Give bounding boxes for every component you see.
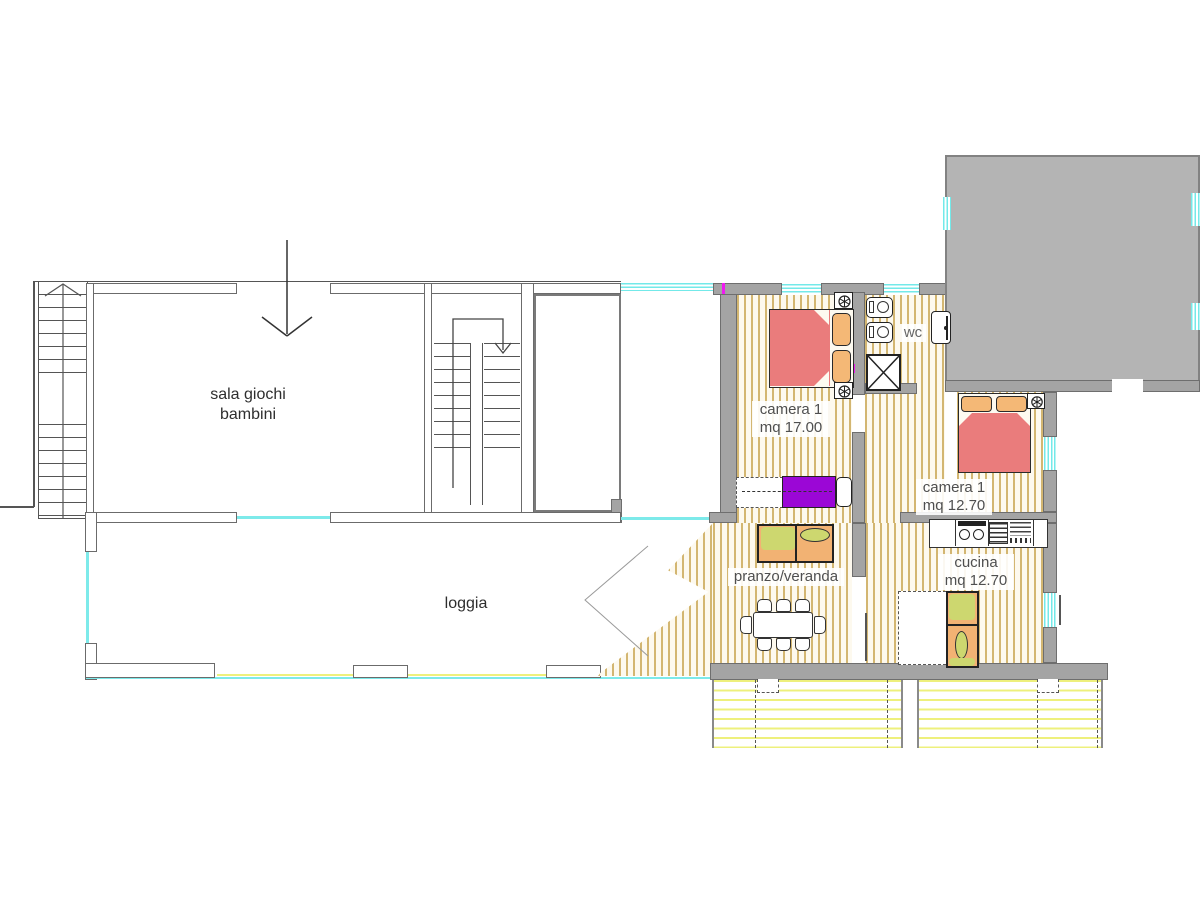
- floor-plan: sala giochi bambini loggia camera 1 mq 1…: [0, 0, 1200, 900]
- entrance-arrow: [262, 240, 312, 336]
- wedge-chevron: [585, 546, 648, 656]
- shower-cross: [868, 356, 899, 389]
- line-overlay: [0, 0, 1200, 900]
